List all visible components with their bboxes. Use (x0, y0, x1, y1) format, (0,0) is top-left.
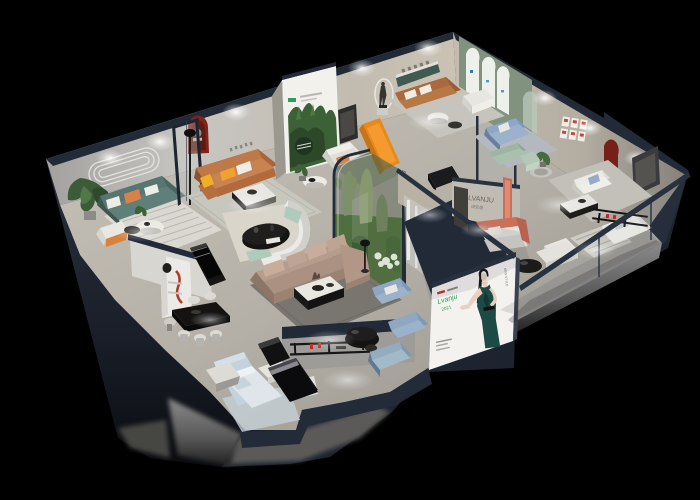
svg-text:绿安居: 绿安居 (471, 203, 484, 210)
